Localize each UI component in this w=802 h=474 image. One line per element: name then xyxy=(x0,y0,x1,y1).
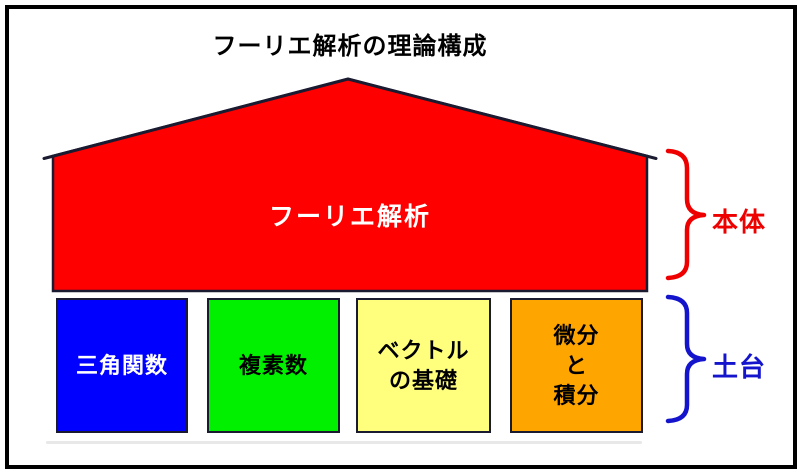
box-line: の基礎 xyxy=(377,366,469,396)
foundation-box-label: ベクトル の基礎 xyxy=(377,336,469,396)
curly-brace-body-icon xyxy=(668,151,704,278)
foundation-box-complex-numbers: 複素数 xyxy=(207,298,340,433)
foundation-box-trigonometry: 三角関数 xyxy=(56,298,188,433)
box-line: 三角関数 xyxy=(76,351,168,381)
brace-label-body: 本体 xyxy=(712,202,766,239)
foundation-box-vectors: ベクトル の基礎 xyxy=(356,298,491,433)
house-label: フーリエ解析 xyxy=(53,197,647,233)
brace-label-foundation: 土台 xyxy=(712,347,766,384)
curly-brace-foundation-icon xyxy=(668,297,704,421)
box-line: 複素数 xyxy=(239,351,308,381)
foundation-box-label: 微分 と 積分 xyxy=(553,321,599,411)
foundation-box-calculus: 微分 と 積分 xyxy=(510,298,643,433)
box-line: 積分 xyxy=(553,381,599,411)
box-line: と xyxy=(553,351,599,381)
box-line: ベクトル xyxy=(377,336,469,366)
foundation-box-label: 複素数 xyxy=(239,351,308,381)
ground-shadow-line xyxy=(46,441,642,444)
diagram-canvas: フーリエ解析の理論構成 フーリエ解析 三角関数 複素数 ベクトル の基礎 微分 … xyxy=(0,0,802,474)
box-line: 微分 xyxy=(553,321,599,351)
house-shape xyxy=(53,79,647,291)
foundation-box-label: 三角関数 xyxy=(76,351,168,381)
